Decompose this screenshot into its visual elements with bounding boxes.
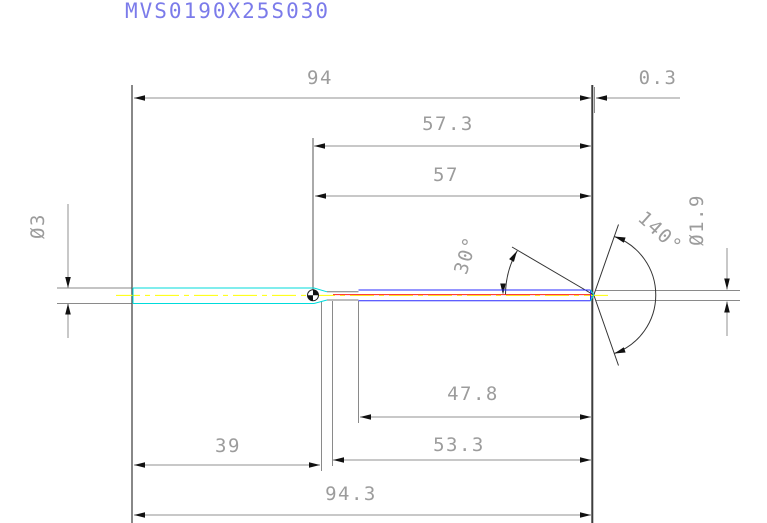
reference-point-marker [308,290,319,301]
extension-lines [57,87,740,471]
arc-140-degree [614,237,655,354]
technical-drawing-canvas: MVS0190X25S030 94 0.3 57.3 57 47.8 53.3 … [0,0,767,523]
dim-0-3-label: 0.3 [639,67,678,89]
dimension-arrows [65,95,730,518]
dim-94-label: 94 [307,67,333,89]
dim-30-degree-label: 30° [450,233,482,277]
drawing-title: MVS0190X25S030 [125,0,330,23]
dim-57-3-label: 57.3 [422,113,474,135]
cad-drawing-page: MVS0190X25S030 94 0.3 57.3 57 47.8 53.3 … [0,0,767,523]
dim-39-label: 39 [215,435,241,457]
dim-tip-diameter-label: Ø1.9 [686,194,708,246]
dim-53-3-label: 53.3 [433,434,485,456]
line-30-degree [512,247,594,295]
dim-140-degree-label: 140° [633,207,686,258]
dim-94-3-label: 94.3 [325,483,377,505]
dimension-lines [68,98,727,515]
dim-57-label: 57 [433,164,459,186]
dim-shank-diameter-label: Ø3 [27,213,49,239]
dim-47-8-label: 47.8 [447,383,499,405]
